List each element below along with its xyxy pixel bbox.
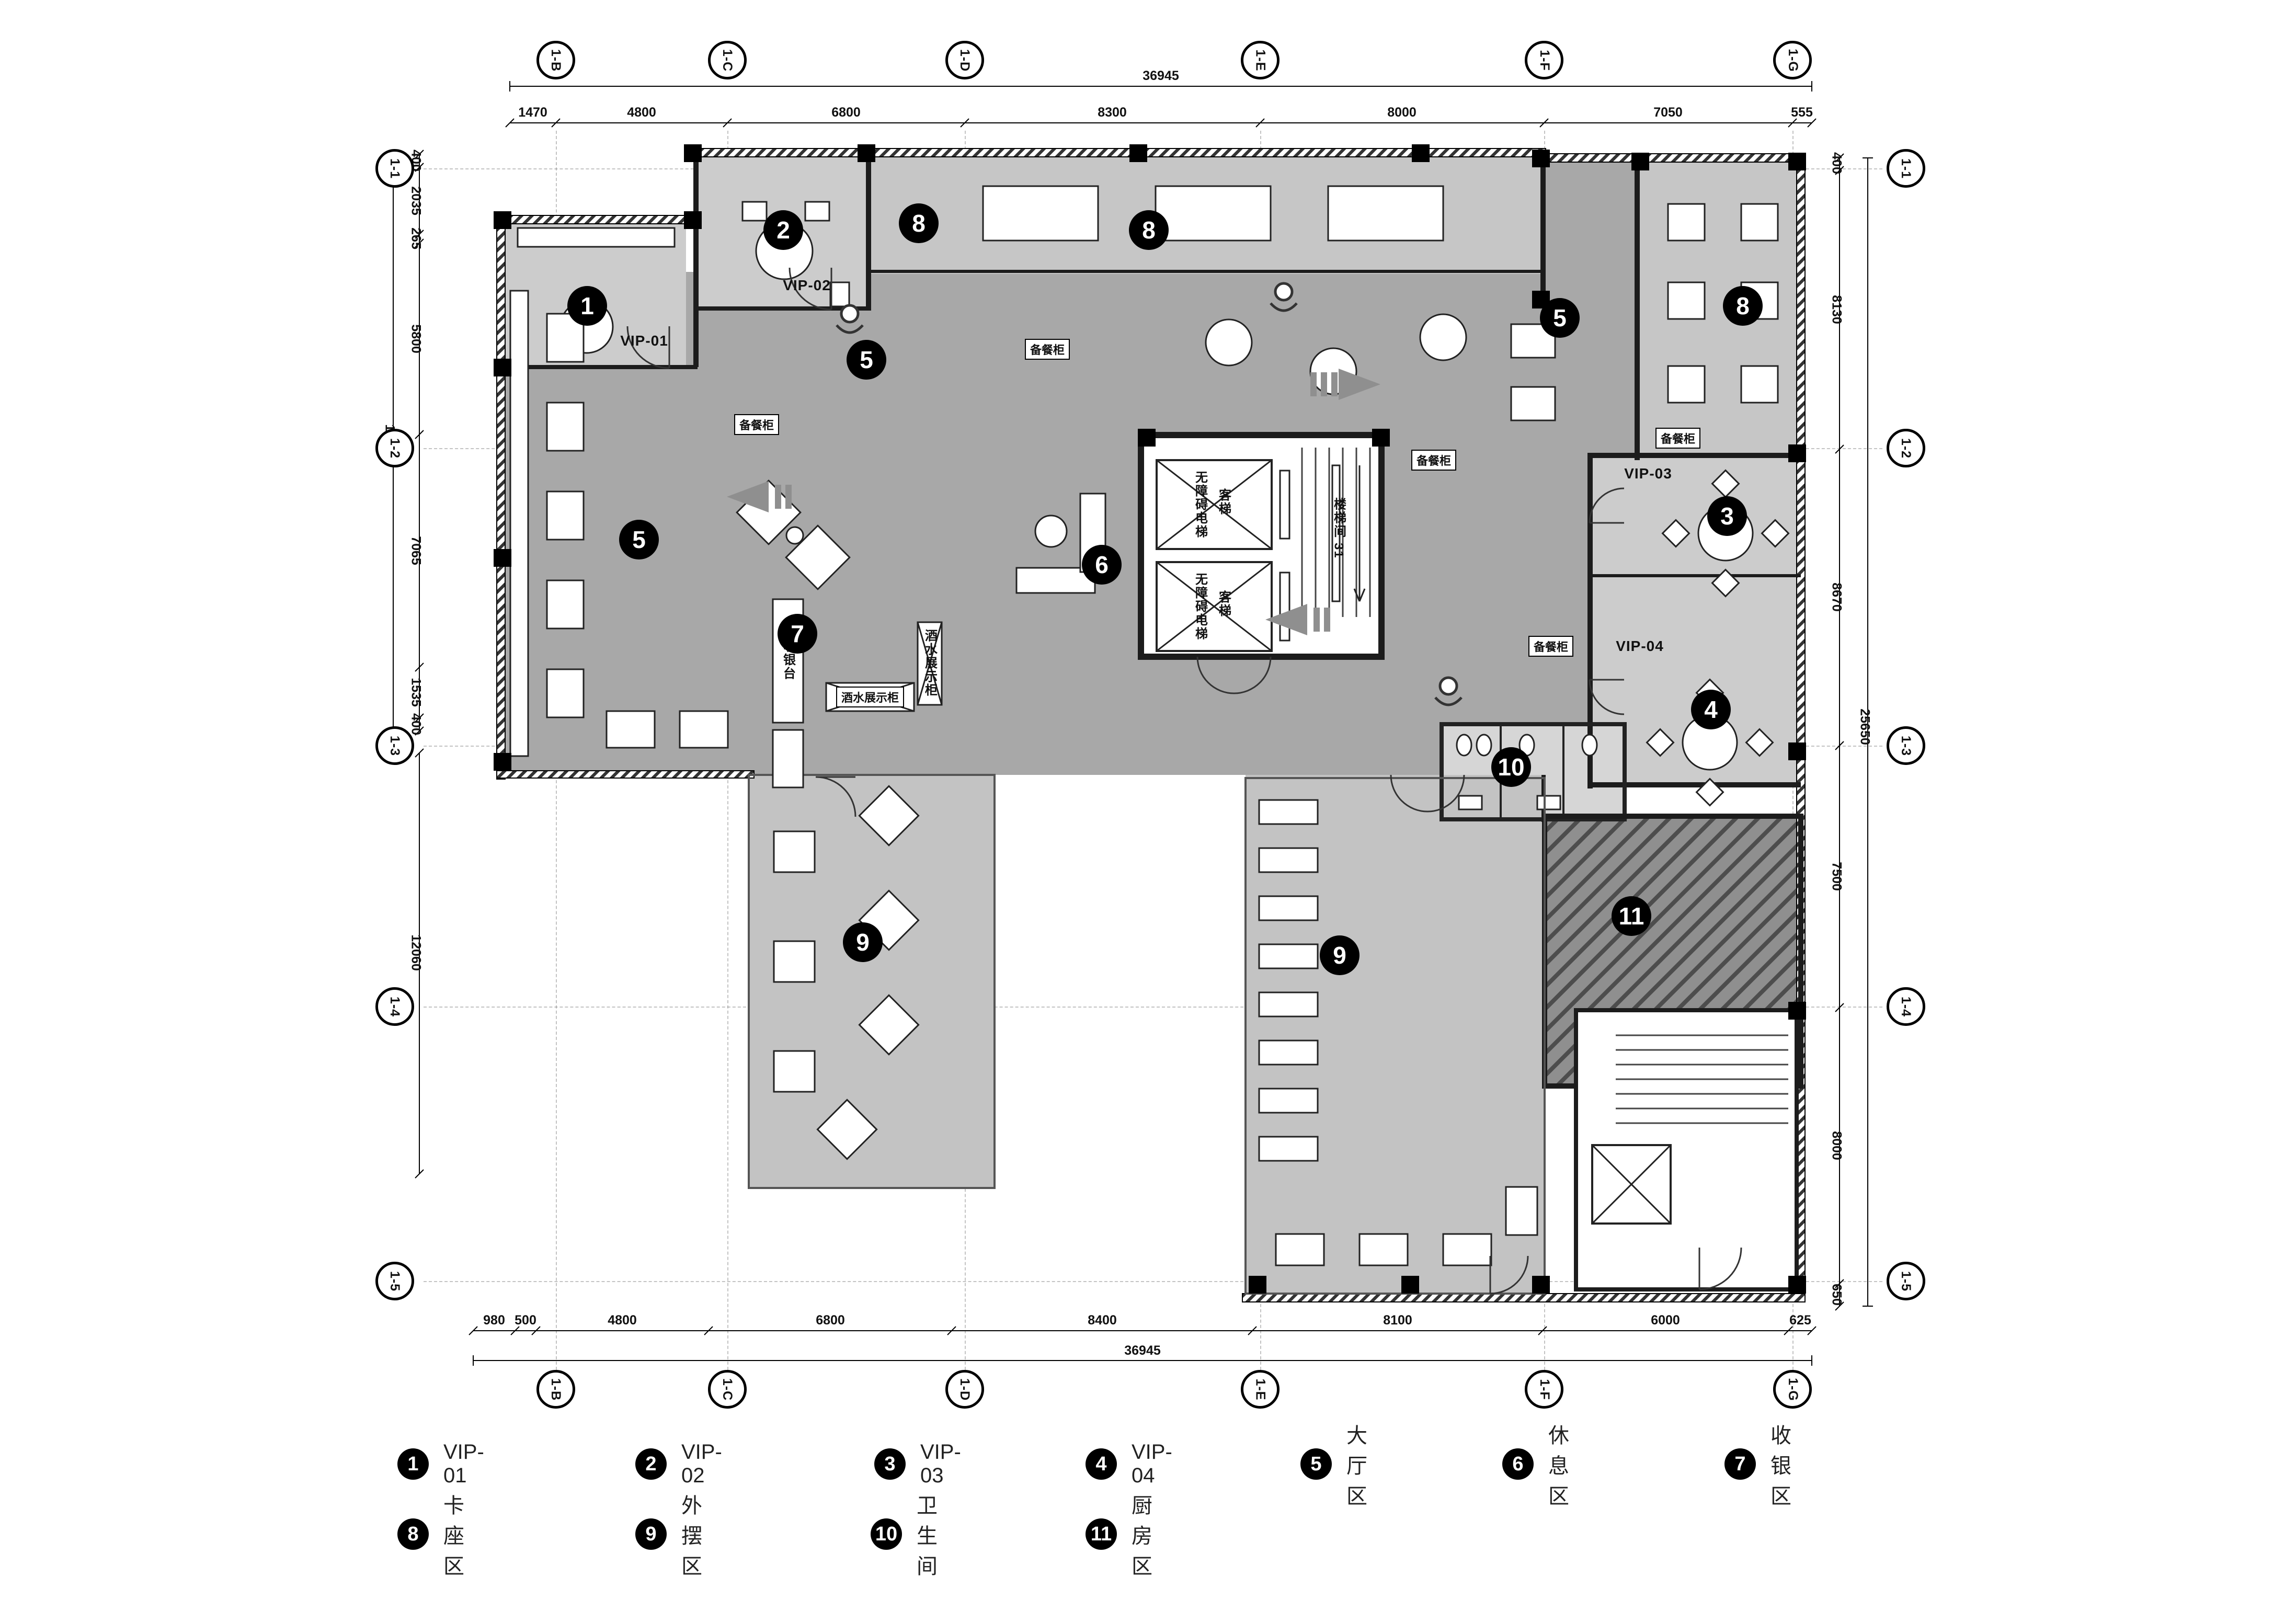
legend-item: 1 VIP-01 [397, 1441, 484, 1488]
plan-label: 无障碍电梯 [1191, 573, 1209, 641]
legend-label: 休息区 [1548, 1419, 1569, 1510]
dimension-label: 6000 [1651, 1313, 1680, 1328]
zone-marker: 1 [567, 286, 607, 326]
legend-item: 2 VIP-02 [635, 1441, 722, 1488]
legend-number-badge: 10 [871, 1518, 902, 1550]
axis-bubble-label: 1-D [957, 1378, 972, 1400]
dimension-label: 980 [483, 1313, 505, 1328]
axis-bubble-label: 1-4 [387, 996, 402, 1016]
dimension-label: 625 [1789, 1313, 1811, 1328]
dimension-label: 36945 [1124, 1343, 1161, 1358]
legend-number-badge: 2 [635, 1448, 667, 1480]
zone-marker: 10 [1491, 747, 1531, 787]
dimension-label: 500 [515, 1313, 536, 1328]
axis-bubble-label: 1-G [1785, 49, 1800, 72]
dimension-label: 4800 [608, 1313, 637, 1328]
zone-marker: 6 [1082, 545, 1122, 585]
core-elevators-stair [1141, 435, 1381, 693]
dimension-label: 400 [408, 713, 424, 735]
axis-bubble: 1-4 [375, 987, 414, 1026]
legend-number-badge: 11 [1086, 1518, 1117, 1550]
legend-item: 4 VIP-04 [1086, 1441, 1172, 1488]
plan-label: 酒水展示柜 [836, 687, 904, 707]
legend-item: 5 大厅区 [1300, 1419, 1367, 1510]
zone-marker: 8 [899, 203, 939, 243]
axis-bubble-label: 1-C [719, 49, 735, 71]
axis-bubble-label: 1-2 [1898, 438, 1913, 458]
zone-marker: 8 [1129, 210, 1169, 250]
legend-item: 10 卫生间 [871, 1489, 938, 1580]
dimension-label: 25650 [1857, 708, 1872, 745]
axis-bubble-label: 1-5 [1898, 1271, 1913, 1291]
legend-number-badge: 5 [1300, 1448, 1332, 1480]
zone-marker: 9 [1320, 935, 1360, 975]
zone-marker: 2 [763, 210, 803, 250]
axis-bubble: 1-C [708, 41, 747, 79]
plan-label: VIP-04 [1616, 638, 1664, 655]
axis-bubble-label: 1-5 [387, 1271, 402, 1291]
legend-item: 8 卡座区 [397, 1489, 464, 1580]
dimension-label: 8670 [1829, 582, 1844, 612]
dimension-label: 8130 [1829, 295, 1844, 324]
axis-bubble-label: 1-G [1785, 1378, 1800, 1401]
axis-bubble-label: 1-1 [387, 158, 402, 178]
dimension-label: 265 [408, 227, 424, 249]
axis-bubble: 1-G [1773, 41, 1812, 79]
plan-label: VIP-01 [620, 333, 668, 349]
axis-bubble: 1-C [708, 1370, 747, 1409]
dimension-label: 8300 [1098, 105, 1127, 120]
plan-label: 酒水展示柜 [921, 629, 939, 697]
axis-bubble: 1-G [1773, 1370, 1812, 1409]
legend-label: 卡座区 [443, 1489, 464, 1580]
axis-bubble-label: 1-1 [1898, 158, 1913, 178]
plan-label: VIP-03 [1624, 465, 1672, 482]
zone-marker: 11 [1612, 896, 1651, 936]
plan-label: 客梯 [1215, 590, 1233, 618]
axis-bubble: 1-1 [375, 149, 414, 188]
axis-bubble-label: 1-B [548, 1378, 563, 1400]
plan-label: 客梯 [1215, 488, 1233, 516]
dimension-label: 6800 [831, 105, 861, 120]
axis-bubble: 1-1 [1887, 149, 1925, 188]
legend-label: 收银区 [1770, 1419, 1791, 1510]
axis-bubble-label: 1-F [1537, 1379, 1552, 1400]
dimension-label: 12060 [408, 934, 424, 971]
dimension-label: 7065 [408, 536, 424, 565]
dimension-label: 1470 [518, 105, 547, 120]
zone-marker: 3 [1707, 496, 1747, 536]
legend-number-badge: 4 [1086, 1448, 1117, 1480]
plan-label: 备餐柜 [734, 414, 779, 435]
axis-bubble: 1-E [1241, 41, 1280, 79]
axis-bubble-label: 1-E [1253, 49, 1268, 71]
legend-number-badge: 9 [635, 1518, 667, 1550]
dimension-label: 6800 [816, 1313, 845, 1328]
axis-bubble-label: 1-3 [1898, 735, 1913, 756]
plan-label: 楼梯间 31 [1330, 497, 1348, 558]
axis-bubble: 1-2 [375, 429, 414, 467]
dimension-label: 2035 [408, 186, 424, 215]
legend-number-badge: 7 [1724, 1448, 1756, 1480]
axis-bubble: 1-B [536, 41, 575, 79]
plan-label: 备餐柜 [1528, 636, 1573, 657]
legend-label: VIP-02 [681, 1441, 722, 1488]
zone-marker: 5 [847, 340, 886, 380]
zone-marker: 5 [619, 520, 659, 559]
legend-label: 大厅区 [1346, 1419, 1367, 1510]
axis-bubble: 1-3 [375, 726, 414, 765]
zone-marker: 5 [1540, 298, 1580, 338]
dimension-label: 400 [1829, 152, 1844, 174]
axis-bubble: 1-E [1241, 1370, 1280, 1409]
legend-number-badge: 6 [1502, 1448, 1534, 1480]
axis-bubble-label: 1-F [1537, 50, 1552, 71]
legend-label: 厨房区 [1132, 1489, 1152, 1580]
legend-label: VIP-04 [1132, 1441, 1172, 1488]
dimension-label: 8000 [1387, 105, 1417, 120]
plan-label: 备餐柜 [1655, 428, 1700, 449]
dimension-label: 555 [1791, 105, 1813, 120]
axis-bubble: 1-F [1525, 41, 1563, 79]
axis-bubble: 1-5 [375, 1262, 414, 1300]
plan-label: 无障碍电梯 [1191, 471, 1209, 539]
dimension-label: 1535 [408, 678, 424, 707]
legend-item: 11 厨房区 [1086, 1489, 1152, 1580]
legend-number-badge: 1 [397, 1448, 429, 1480]
legend-label: 卫生间 [917, 1489, 938, 1580]
dimension-label: 36945 [1143, 68, 1179, 84]
dimension-label: 8100 [1383, 1313, 1412, 1328]
floor-plan-canvas: 1-B 1-C 1-D 1-E 1-F 1-G 1-B 1-C 1-D 1-E … [0, 0, 2296, 1623]
axis-bubble: 1-B [536, 1370, 575, 1409]
legend-label: VIP-03 [920, 1441, 961, 1488]
legend-item: 3 VIP-03 [874, 1441, 961, 1488]
axis-bubble-label: 1-3 [387, 735, 402, 756]
legend-item: 6 休息区 [1502, 1419, 1569, 1510]
legend-label: 外摆区 [681, 1489, 702, 1580]
axis-bubble: 1-F [1525, 1370, 1563, 1409]
legend-number-badge: 8 [397, 1518, 429, 1550]
plan-label: 备餐柜 [1411, 450, 1456, 471]
legend-label: VIP-01 [443, 1441, 484, 1488]
zone-marker: 8 [1723, 286, 1763, 326]
axis-bubble-label: 1-C [719, 1378, 735, 1400]
dimension-label: 7050 [1653, 105, 1683, 120]
axis-bubble-label: 1-E [1253, 1378, 1268, 1400]
axis-bubble-label: 1-D [957, 49, 972, 71]
dimension-label: 8400 [1088, 1313, 1117, 1328]
zone-marker: 4 [1691, 690, 1731, 729]
dimension-label: 5800 [408, 324, 424, 353]
axis-bubble: 1-5 [1887, 1262, 1925, 1300]
legend-item: 9 外摆区 [635, 1489, 702, 1580]
dimension-label: 7500 [1829, 862, 1844, 891]
zone-marker: 7 [778, 614, 817, 654]
legend-number-badge: 3 [874, 1448, 906, 1480]
axis-bubble-label: 1-B [548, 49, 563, 71]
axis-bubble: 1-4 [1887, 987, 1925, 1026]
axis-bubble: 1-D [945, 41, 984, 79]
plan-label: VIP-02 [783, 277, 831, 294]
axis-bubble-label: 1-4 [1898, 996, 1913, 1016]
zone-marker: 9 [843, 922, 883, 962]
dimension-label: 650 [1829, 1284, 1844, 1306]
axis-bubble: 1-2 [1887, 429, 1925, 467]
axis-bubble: 1-3 [1887, 726, 1925, 765]
axis-bubble-label: 1-2 [387, 438, 402, 458]
axis-bubble: 1-D [945, 1370, 984, 1409]
dimension-label: 8000 [1829, 1131, 1844, 1160]
legend-item: 7 收银区 [1724, 1419, 1791, 1510]
plan-label: 备餐柜 [1025, 339, 1070, 360]
dimension-label: 4800 [627, 105, 656, 120]
